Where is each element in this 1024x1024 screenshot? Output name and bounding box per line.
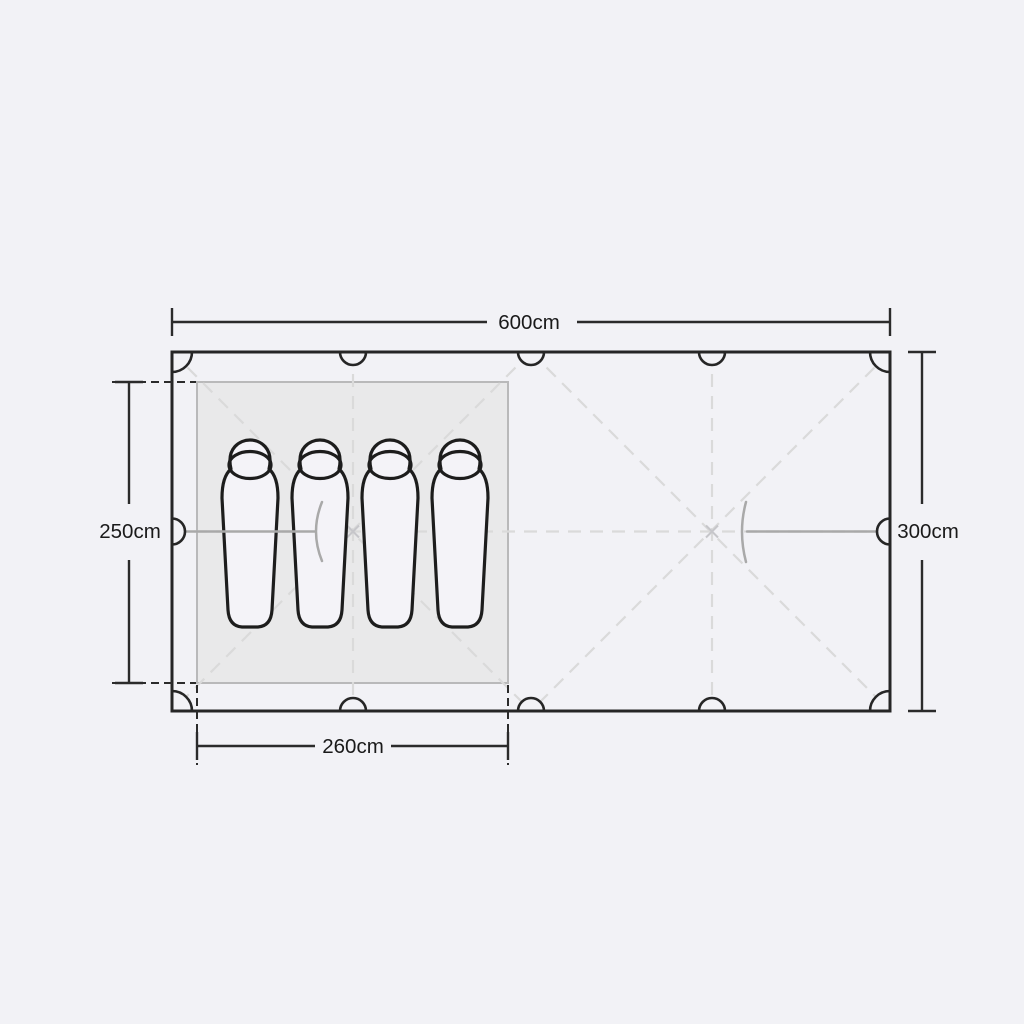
- dimension-total-width: 600cm: [172, 308, 890, 336]
- bedroom-depth-label: 250cm: [99, 520, 161, 543]
- tent-floorplan-diagram: 600cm 300cm 250cm: [0, 0, 1024, 1024]
- tent-floorplan-canvas: 600cm 300cm 250cm: [0, 0, 1024, 1024]
- sleeping-bag-3: [362, 440, 418, 627]
- total-depth-label: 300cm: [897, 520, 959, 543]
- sleeping-bag-1: [222, 440, 278, 627]
- dimension-bedroom-depth: 250cm: [99, 382, 161, 683]
- total-width-label: 600cm: [498, 311, 560, 334]
- sleeping-bag-4: [432, 440, 488, 627]
- dimension-bedroom-width: 260cm: [197, 732, 508, 760]
- sleeping-bag-2: [292, 440, 348, 627]
- dimension-total-depth: 300cm: [897, 352, 959, 711]
- bedroom-width-label: 260cm: [322, 735, 384, 758]
